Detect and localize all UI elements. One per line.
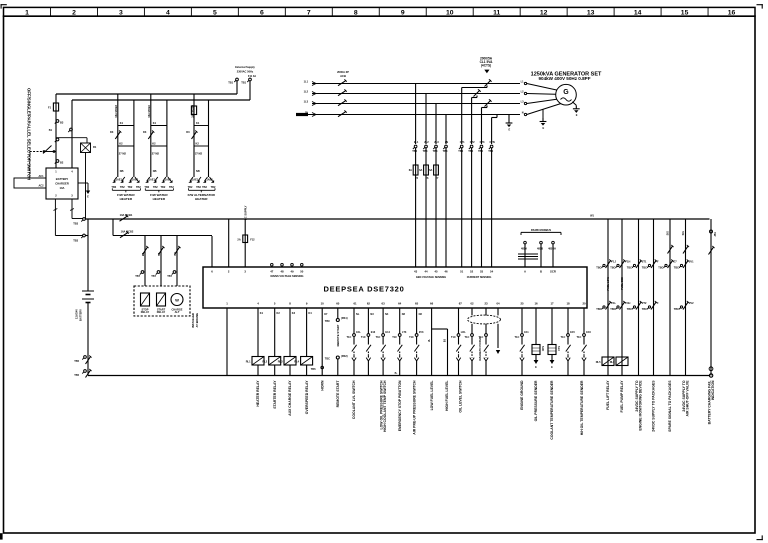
- svg-text:67: 67: [459, 302, 463, 306]
- svg-text:TB2: TB2: [136, 185, 141, 189]
- svg-text:TBC: TBC: [674, 307, 679, 311]
- svg-text:B3: B3: [60, 121, 64, 125]
- svg-text:9: 9: [401, 9, 405, 16]
- svg-text:6: 6: [260, 9, 264, 16]
- svg-text:SPARE SIGNAL TO PACKAGES: SPARE SIGNAL TO PACKAGES: [668, 380, 672, 432]
- svg-text:BATTERY: BATTERY: [56, 177, 69, 181]
- svg-text:T1C: T1C: [576, 335, 581, 339]
- svg-text:CT3: CT3: [480, 140, 485, 144]
- svg-text:E13: E13: [371, 330, 376, 334]
- svg-text:1L1: 1L1: [304, 79, 309, 83]
- svg-text:RL1: RL1: [246, 360, 251, 364]
- svg-text:24VDC SUPPLY TO PACKAGES: 24VDC SUPPLY TO PACKAGES: [652, 380, 656, 432]
- svg-text:2N: 2N: [445, 140, 448, 144]
- svg-text:OFF/SINGLE/PARALLEL SELECTOR S: OFF/SINGLE/PARALLEL SELECTOR SWITCH: [27, 88, 32, 180]
- svg-text:ACB: ACB: [340, 74, 346, 78]
- svg-text:E14: E14: [385, 330, 390, 334]
- svg-text:F11 4A: F11 4A: [248, 74, 256, 78]
- svg-text:16A MCB2: 16A MCB2: [121, 230, 134, 234]
- svg-text:15: 15: [681, 9, 689, 16]
- svg-text:F1J: F1J: [612, 260, 617, 264]
- svg-text:(4CTS): (4CTS): [481, 64, 491, 68]
- svg-text:T1C: T1C: [392, 335, 397, 339]
- svg-text:2V3: 2V3: [419, 330, 424, 334]
- svg-text:43: 43: [414, 270, 418, 274]
- svg-text:2V1: 2V1: [689, 260, 694, 264]
- svg-text:OIL LEVEL SWITCH: OIL LEVEL SWITCH: [459, 380, 463, 413]
- svg-text:K1: K1: [260, 311, 264, 315]
- svg-text:TB1: TB1: [241, 81, 246, 85]
- svg-text:27 M2: 27 M2: [195, 152, 203, 156]
- svg-text:25: 25: [520, 302, 524, 306]
- svg-text:62: 62: [367, 302, 371, 306]
- svg-text:INSTALLED: INSTALLED: [191, 313, 195, 328]
- svg-text:18: 18: [566, 302, 570, 306]
- svg-text:TB2: TB2: [127, 185, 132, 189]
- svg-text:52: 52: [470, 270, 474, 274]
- svg-text:49: 49: [290, 270, 294, 274]
- svg-text:27 M2: 27 M2: [152, 152, 160, 156]
- svg-text:TB7: TB7: [167, 274, 172, 278]
- svg-text:1AE1: 1AE1: [149, 178, 156, 182]
- svg-text:CH: CH: [174, 252, 177, 256]
- svg-text:A: A: [524, 270, 526, 274]
- svg-text:04: 04: [496, 302, 500, 306]
- svg-text:20: 20: [582, 302, 586, 306]
- svg-text:N3: N3: [419, 312, 423, 316]
- svg-text:2A: 2A: [237, 238, 240, 242]
- svg-text:CT1: CT1: [460, 140, 465, 144]
- svg-text:RL4: RL4: [294, 360, 299, 364]
- svg-text:16: 16: [534, 302, 538, 306]
- svg-text:FUEL LIFT RELAY: FUEL LIFT RELAY: [606, 380, 610, 410]
- svg-text:48: 48: [280, 270, 284, 274]
- svg-text:ENGINE GROUND: ENGINE GROUND: [520, 380, 524, 410]
- svg-text:3: 3: [119, 9, 123, 16]
- svg-text:6A: 6A: [429, 168, 432, 172]
- svg-text:F12: F12: [250, 238, 255, 242]
- svg-text:T1C: T1C: [346, 335, 351, 339]
- svg-text:K1: K1: [196, 121, 200, 125]
- svg-text:T1C: T1C: [560, 335, 565, 339]
- svg-text:51: 51: [460, 270, 464, 274]
- svg-text:NL: NL: [356, 312, 360, 316]
- svg-text:FUEL PUMP RELAY: FUEL PUMP RELAY: [620, 380, 624, 413]
- svg-text:1AE1: 1AE1: [192, 178, 199, 182]
- svg-text:10A MCB1: 10A MCB1: [120, 213, 133, 217]
- svg-text:54: 54: [490, 270, 494, 274]
- svg-text:TB3: TB3: [73, 239, 78, 243]
- svg-text:HORN: HORN: [320, 380, 324, 391]
- svg-text:TB2: TB2: [202, 185, 207, 189]
- svg-text:2T1: 2T1: [642, 260, 647, 264]
- svg-text:TB2: TB2: [169, 185, 174, 189]
- svg-text:10: 10: [321, 302, 325, 306]
- svg-text:TB2: TB2: [196, 185, 201, 189]
- svg-text:LOW FUEL LEVEL: LOW FUEL LEVEL: [430, 381, 434, 411]
- svg-text:02: 02: [470, 302, 474, 306]
- svg-text:485A: 485A: [521, 247, 527, 251]
- svg-text:12: 12: [540, 9, 548, 16]
- svg-text:TB6: TB6: [311, 367, 316, 371]
- svg-text:TBC: TBC: [610, 266, 615, 270]
- svg-text:1AE2: 1AE2: [132, 178, 139, 182]
- svg-text:D3: D3: [143, 130, 147, 134]
- svg-text:TB2: TB2: [153, 185, 158, 189]
- svg-text:GEN VOLTAGE SENSING: GEN VOLTAGE SENSING: [416, 275, 446, 279]
- svg-text:DEEPSEA DSE7320: DEEPSEA DSE7320: [323, 285, 404, 294]
- svg-text:11: 11: [493, 9, 500, 16]
- svg-text:T1C: T1C: [451, 335, 456, 339]
- svg-text:CURRENT SENSING: CURRENT SENSING: [467, 275, 492, 279]
- svg-text:66: 66: [430, 302, 434, 306]
- svg-text:60: 60: [336, 302, 340, 306]
- svg-text:(RS1): (RS1): [341, 316, 348, 320]
- svg-text:10A MCB5: 10A MCB5: [190, 104, 194, 117]
- svg-text:TBC: TBC: [674, 266, 679, 270]
- svg-text:61: 61: [353, 302, 357, 306]
- svg-text:INDICATION: INDICATION: [711, 380, 715, 400]
- svg-text:6A: 6A: [409, 168, 412, 172]
- svg-text:N3: N3: [370, 312, 374, 316]
- svg-text:16: 16: [728, 9, 736, 16]
- svg-text:16A MCB4: 16A MCB4: [147, 104, 151, 117]
- svg-text:E: E: [551, 365, 553, 369]
- svg-text:7: 7: [307, 9, 311, 16]
- svg-text:TB2: TB2: [188, 185, 193, 189]
- svg-text:REMOTE START: REMOTE START: [336, 380, 340, 408]
- svg-text:CT2: CT2: [470, 140, 475, 144]
- svg-text:RL2: RL2: [262, 360, 267, 364]
- svg-text:B: B: [540, 270, 542, 274]
- svg-text:14: 14: [634, 9, 642, 16]
- svg-text:G: G: [563, 89, 569, 96]
- svg-text:TB4: TB4: [423, 149, 428, 153]
- svg-text:2: 2: [72, 9, 76, 16]
- svg-text:10: 10: [446, 9, 454, 16]
- svg-text:TB4: TB4: [468, 149, 473, 153]
- svg-text:OPS: OPS: [542, 346, 545, 352]
- svg-text:RL3: RL3: [278, 360, 283, 364]
- svg-text:T1C: T1C: [464, 335, 469, 339]
- svg-text:DC SUPPLY: DC SUPPLY: [244, 205, 248, 220]
- svg-text:K2: K2: [277, 311, 281, 315]
- svg-text:44: 44: [424, 270, 428, 274]
- svg-text:MAINS VOLTAGE SENSING: MAINS VOLTAGE SENSING: [270, 274, 303, 278]
- svg-text:6A: 6A: [419, 168, 422, 172]
- svg-text:TB4: TB4: [412, 149, 417, 153]
- svg-text:E16: E16: [586, 330, 591, 334]
- svg-text:COOLANT LVL SWITCH: COOLANT LVL SWITCH: [352, 380, 356, 419]
- svg-text:64: 64: [398, 302, 402, 306]
- svg-text:230VAC 50Hz: 230VAC 50Hz: [237, 69, 254, 73]
- svg-text:485B: 485B: [537, 247, 543, 251]
- svg-text:2V2: 2V2: [689, 301, 694, 305]
- svg-text:ES: ES: [142, 252, 145, 256]
- svg-text:E: E: [508, 127, 510, 131]
- svg-text:2L3: 2L3: [434, 140, 439, 144]
- svg-text:RL5: RL5: [596, 360, 601, 364]
- svg-text:RL6: RL6: [610, 360, 615, 364]
- svg-text:E: E: [535, 365, 537, 369]
- svg-text:47: 47: [270, 270, 274, 274]
- svg-text:TBC: TBC: [610, 307, 615, 311]
- svg-text:K2: K2: [196, 142, 200, 146]
- svg-text:OIL PRESSURE SENDER: OIL PRESSURE SENDER: [534, 380, 538, 421]
- svg-text:TB4: TB4: [458, 149, 463, 153]
- svg-text:TB3: TB3: [73, 222, 78, 226]
- svg-text:ALT: ALT: [175, 310, 180, 314]
- svg-text:63: 63: [382, 302, 386, 306]
- svg-text:HIGH FUEL LEVEL: HIGH FUEL LEVEL: [445, 381, 449, 412]
- svg-text:TB5: TB5: [74, 359, 79, 363]
- svg-text:E1L: E1L: [356, 330, 361, 334]
- svg-text:TB7: TB7: [151, 274, 156, 278]
- svg-text:TBC: TBC: [642, 266, 647, 270]
- svg-text:2L2: 2L2: [424, 140, 429, 144]
- svg-text:AIR SHUT-OFF VALVE: AIR SHUT-OFF VALVE: [686, 380, 690, 417]
- svg-text:FUEL LOW: FUEL LOW: [606, 276, 610, 290]
- svg-text:CTN: CTN: [489, 140, 494, 144]
- svg-text:TB1: TB1: [228, 81, 233, 85]
- svg-text:TB7: TB7: [135, 274, 140, 278]
- svg-text:AT ENGINE: AT ENGINE: [195, 313, 199, 328]
- svg-text:CTS: CTS: [558, 346, 561, 351]
- svg-text:RS485 MODBUS: RS485 MODBUS: [531, 228, 551, 232]
- svg-text:W1: W1: [590, 214, 594, 218]
- svg-text:NB: NB: [196, 169, 200, 173]
- svg-text:K1: K1: [120, 121, 124, 125]
- svg-text:HEATER: HEATER: [195, 197, 208, 201]
- svg-text:H/H OIL TEMPERATURE SENDER: H/H OIL TEMPERATURE SENDER: [580, 380, 584, 435]
- svg-text:1AE1: 1AE1: [116, 178, 123, 182]
- svg-text:1AE2: 1AE2: [206, 178, 213, 182]
- svg-text:TB2: TB2: [120, 185, 125, 189]
- svg-text:E11: E11: [524, 330, 529, 334]
- svg-text:TB4: TB4: [478, 149, 483, 153]
- svg-text:8: 8: [354, 9, 358, 16]
- svg-text:50: 50: [300, 270, 304, 274]
- svg-text:16A MCB3: 16A MCB3: [114, 104, 118, 117]
- svg-text:K1: K1: [153, 121, 157, 125]
- svg-text:REMOTE START: REMOTE START: [336, 324, 340, 346]
- svg-text:TBC: TBC: [325, 357, 330, 361]
- svg-text:K7: K7: [324, 312, 328, 316]
- svg-text:B2: B2: [60, 161, 64, 165]
- svg-text:TB2: TB2: [160, 185, 165, 189]
- svg-text:N4: N4: [385, 312, 389, 316]
- svg-text:K2: K2: [152, 142, 156, 146]
- svg-text:17: 17: [550, 302, 554, 306]
- svg-text:F1H: F1H: [626, 260, 631, 264]
- svg-text:T1C: T1C: [361, 335, 366, 339]
- svg-text:HEATER RELAY: HEATER RELAY: [256, 380, 260, 407]
- svg-text:W: W: [175, 298, 179, 303]
- svg-text:CHARGER: CHARGER: [55, 182, 69, 186]
- svg-text:ST: ST: [158, 252, 161, 256]
- svg-text:F1L: F1L: [612, 301, 617, 305]
- svg-text:45: 45: [434, 270, 438, 274]
- svg-text:E: E: [87, 195, 89, 199]
- svg-text:53: 53: [480, 270, 484, 274]
- svg-text:E: E: [542, 126, 544, 130]
- svg-text:TBC: TBC: [596, 266, 601, 270]
- svg-text:27 M2: 27 M2: [119, 152, 127, 156]
- svg-text:TBC: TBC: [325, 319, 330, 323]
- svg-text:AIR PRE-UP PRESSURE SWITCH: AIR PRE-UP PRESSURE SWITCH: [413, 380, 417, 435]
- svg-text:B1: B1: [49, 128, 53, 132]
- svg-text:TB4: TB4: [488, 149, 493, 153]
- svg-text:TBC: TBC: [596, 307, 601, 311]
- svg-text:485SH: 485SH: [548, 247, 556, 251]
- svg-text:ENGINE MONITORING DEVICE: ENGINE MONITORING DEVICE: [639, 380, 643, 431]
- svg-text:TB5: TB5: [74, 373, 79, 377]
- svg-text:JB1: JB1: [714, 231, 717, 236]
- svg-text:TBC: TBC: [627, 266, 632, 270]
- svg-text:13: 13: [587, 9, 595, 16]
- svg-text:1L2: 1L2: [304, 89, 309, 93]
- svg-text:23: 23: [484, 302, 488, 306]
- svg-text:TB2: TB2: [144, 185, 149, 189]
- svg-text:TB4: TB4: [443, 149, 448, 153]
- svg-text:T1C: T1C: [409, 335, 414, 339]
- svg-text:RELAY: RELAY: [141, 310, 150, 314]
- svg-text:B-: B-: [395, 371, 398, 375]
- svg-text:NB: NB: [120, 169, 124, 173]
- svg-text:STARTER RELAY: STARTER RELAY: [273, 380, 277, 409]
- svg-text:1AE2: 1AE2: [165, 178, 172, 182]
- svg-text:R1: R1: [93, 145, 97, 149]
- svg-text:AUX CHARGE RELAY: AUX CHARGE RELAY: [288, 380, 292, 416]
- svg-text:5: 5: [213, 9, 217, 16]
- svg-text:E: E: [576, 113, 578, 117]
- svg-text:TB2: TB2: [211, 185, 216, 189]
- svg-text:46: 46: [444, 270, 448, 274]
- svg-text:SIG: SIG: [682, 231, 685, 235]
- svg-text:2L: 2L: [428, 339, 431, 342]
- svg-text:TBC: TBC: [627, 307, 632, 311]
- svg-text:1L3: 1L3: [304, 99, 309, 103]
- svg-text:D3: D3: [110, 130, 114, 134]
- svg-text:1: 1: [25, 9, 29, 16]
- svg-text:BATTERY: BATTERY: [79, 309, 83, 321]
- svg-text:4: 4: [166, 9, 170, 16]
- svg-text:904kW 400V 50Hz 0.8PF: 904kW 400V 50Hz 0.8PF: [538, 76, 590, 81]
- svg-text:D3: D3: [186, 130, 190, 134]
- svg-text:10A: 10A: [60, 186, 65, 190]
- svg-text:TBC: TBC: [658, 266, 663, 270]
- svg-text:2000A 3P: 2000A 3P: [337, 70, 349, 74]
- svg-text:TB4: TB4: [433, 149, 438, 153]
- svg-text:EMERGENCY STOP P/BUTTON: EMERGENCY STOP P/BUTTON: [398, 380, 402, 431]
- svg-text:COOLANT TEMPERATURE SENDER: COOLANT TEMPERATURE SENDER: [550, 380, 554, 440]
- svg-text:HEATER: HEATER: [120, 197, 133, 201]
- svg-text:(RS2): (RS2): [341, 354, 348, 358]
- svg-text:HIGH COOLANT TEMP SWITCH: HIGH COOLANT TEMP SWITCH: [383, 380, 387, 432]
- svg-text:LDL: LDL: [461, 330, 466, 334]
- svg-text:N3: N3: [402, 312, 406, 316]
- svg-text:N: N: [522, 111, 524, 115]
- svg-text:SCR: SCR: [550, 270, 556, 274]
- svg-text:K2: K2: [119, 142, 123, 146]
- svg-text:TB2: TB2: [111, 185, 116, 189]
- svg-text:65: 65: [415, 302, 419, 306]
- svg-text:NB: NB: [153, 169, 157, 173]
- svg-text:HEATER: HEATER: [153, 197, 166, 201]
- svg-text:RELAY: RELAY: [157, 310, 166, 314]
- svg-text:OVERSPEED RELAY: OVERSPEED RELAY: [305, 380, 309, 414]
- svg-text:T1C: T1C: [376, 335, 381, 339]
- svg-text:TBC: TBC: [642, 307, 647, 311]
- svg-text:2L1: 2L1: [414, 140, 419, 144]
- svg-text:E15: E15: [570, 330, 575, 334]
- svg-text:2T2: 2T2: [642, 301, 647, 305]
- svg-text:T1C: T1C: [514, 335, 519, 339]
- svg-text:FUEL SED: FUEL SED: [620, 277, 624, 290]
- svg-text:LT3: LT3: [402, 330, 407, 334]
- svg-text:12V/24V: 12V/24V: [75, 309, 79, 319]
- svg-text:MAGNETIC PICKUP: MAGNETIC PICKUP: [479, 337, 482, 361]
- svg-text:External Supply: External Supply: [235, 65, 255, 69]
- svg-text:K3: K3: [292, 311, 296, 315]
- svg-text:AC1: AC1: [38, 174, 44, 178]
- svg-text:K4: K4: [308, 311, 312, 315]
- svg-text:F4H: F4H: [626, 301, 631, 305]
- svg-text:AC2: AC2: [38, 184, 44, 188]
- svg-text:SIG: SIG: [667, 231, 670, 235]
